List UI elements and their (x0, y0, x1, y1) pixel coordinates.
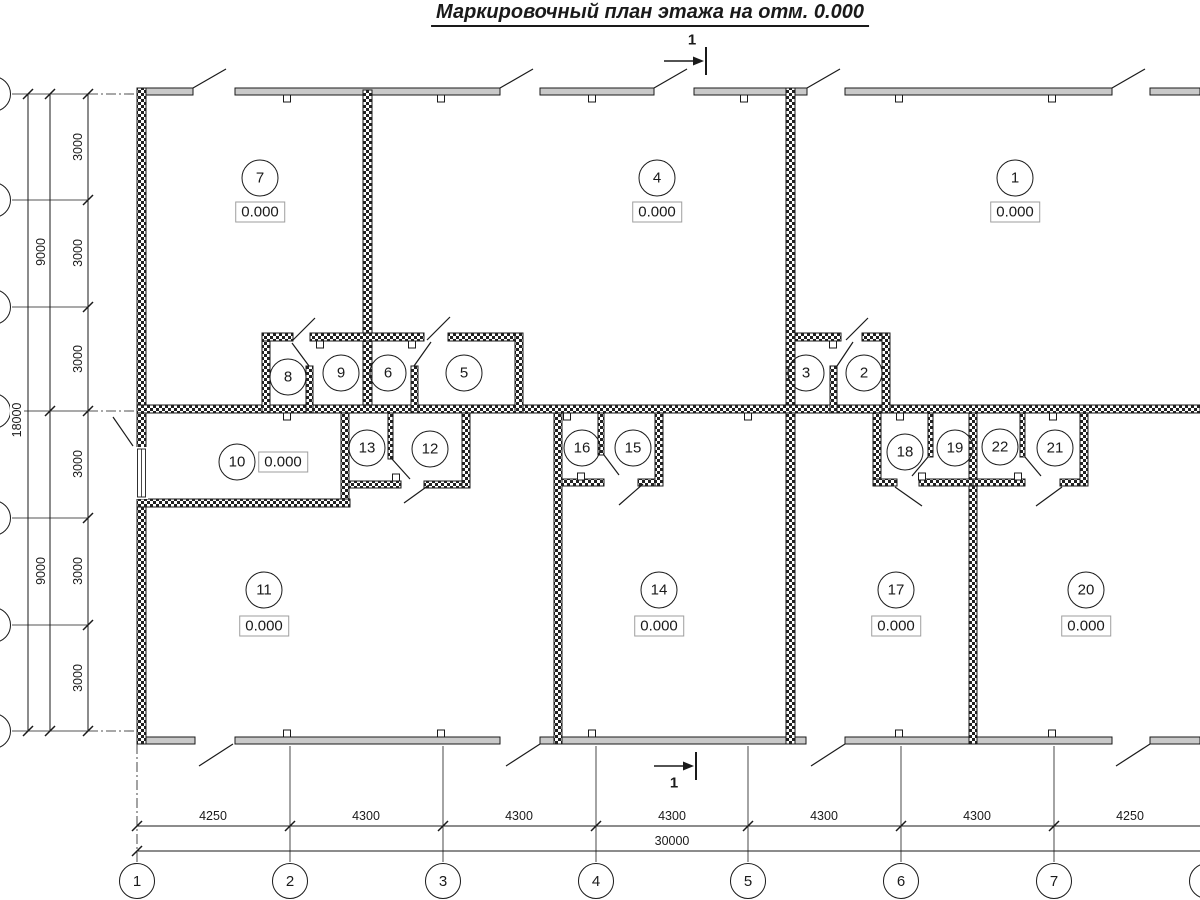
section-label: 1 (688, 32, 696, 49)
section-labels-layer: 11 (0, 0, 1200, 900)
floor-plan-page: Маркировочный план этажа на отм. 0.000 (0, 0, 1200, 900)
section-label: 1 (670, 775, 678, 792)
